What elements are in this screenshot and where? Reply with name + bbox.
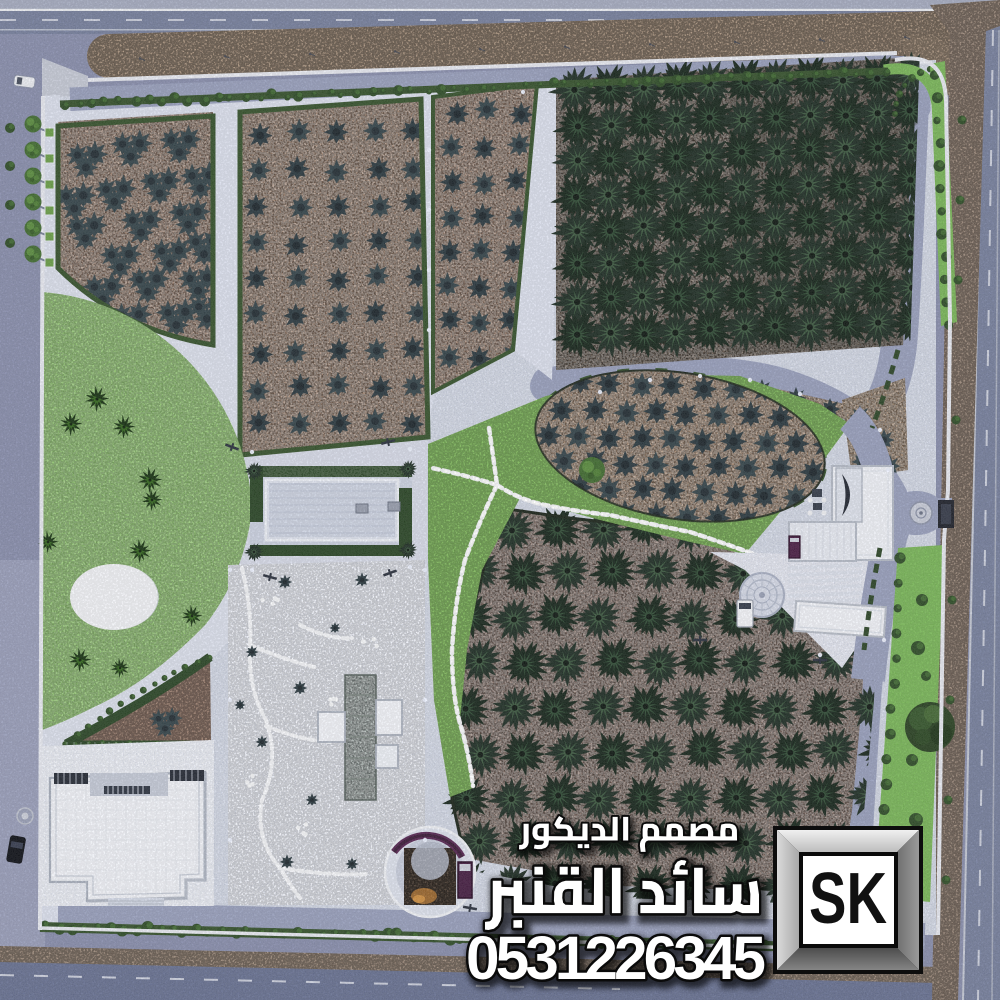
svg-text:0531226345: 0531226345 (466, 924, 765, 992)
svg-text:SK: SK (809, 859, 887, 939)
